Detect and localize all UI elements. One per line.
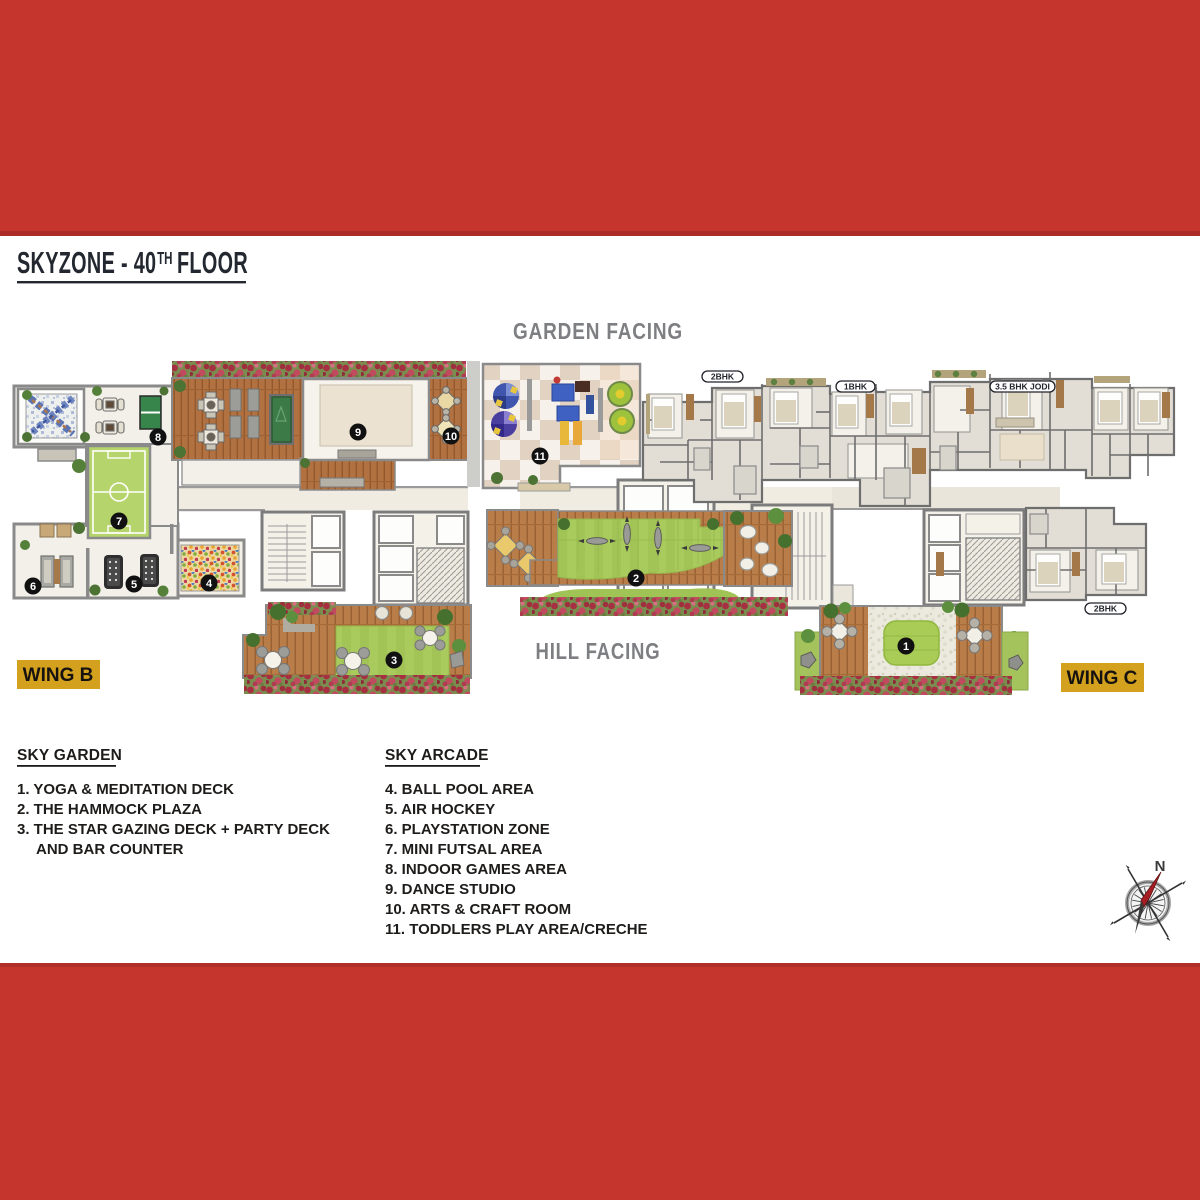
svg-text:WING B: WING B <box>23 665 94 686</box>
svg-text:5. AIR HOCKEY: 5. AIR HOCKEY <box>385 801 495 818</box>
svg-text:WING C: WING C <box>1067 668 1138 689</box>
svg-text:TH: TH <box>157 249 172 269</box>
svg-text:11: 11 <box>534 451 546 463</box>
svg-text:SKY ARCADE: SKY ARCADE <box>385 747 489 764</box>
svg-text:SKY GARDEN: SKY GARDEN <box>17 747 122 764</box>
svg-text:AND BAR COUNTER: AND BAR COUNTER <box>36 841 184 858</box>
svg-text:6: 6 <box>30 581 36 593</box>
svg-text:3.5 BHK JODI: 3.5 BHK JODI <box>995 382 1050 392</box>
svg-text:11. TODDLERS PLAY AREA/CRECHE: 11. TODDLERS PLAY AREA/CRECHE <box>385 921 648 938</box>
svg-text:3: 3 <box>391 655 397 667</box>
svg-text:2BHK: 2BHK <box>1094 604 1118 614</box>
svg-text:5: 5 <box>131 579 137 591</box>
svg-text:1. YOGA & MEDITATION DECK: 1. YOGA & MEDITATION DECK <box>17 781 234 798</box>
svg-text:1BHK: 1BHK <box>844 382 868 392</box>
svg-text:3. THE STAR GAZING DECK + PART: 3. THE STAR GAZING DECK + PARTY DECK <box>17 821 330 838</box>
svg-text:4: 4 <box>206 578 213 590</box>
svg-text:4. BALL POOL AREA: 4. BALL POOL AREA <box>385 781 534 798</box>
svg-text:HILL FACING: HILL FACING <box>536 638 661 664</box>
svg-text:9: 9 <box>355 427 361 439</box>
svg-text:N: N <box>1155 858 1166 875</box>
svg-text:2: 2 <box>633 573 639 585</box>
svg-text:7: 7 <box>116 516 122 528</box>
svg-text:7. MINI FUTSAL AREA: 7. MINI FUTSAL AREA <box>385 841 543 858</box>
svg-text:1: 1 <box>903 641 909 653</box>
svg-text:2. THE HAMMOCK PLAZA: 2. THE HAMMOCK PLAZA <box>17 801 202 818</box>
svg-text:10. ARTS & CRAFT ROOM: 10. ARTS & CRAFT ROOM <box>385 901 571 918</box>
svg-text:9. DANCE STUDIO: 9. DANCE STUDIO <box>385 881 516 898</box>
svg-text:SKYZONE - 40: SKYZONE - 40 <box>17 244 156 280</box>
svg-text:8: 8 <box>155 432 161 444</box>
svg-text:10: 10 <box>445 431 457 443</box>
svg-text:8. INDOOR GAMES AREA: 8. INDOOR GAMES AREA <box>385 861 567 878</box>
svg-text:6. PLAYSTATION ZONE: 6. PLAYSTATION ZONE <box>385 821 550 838</box>
svg-text:GARDEN FACING: GARDEN FACING <box>513 318 683 344</box>
svg-text:FLOOR: FLOOR <box>177 244 248 280</box>
svg-text:2BHK: 2BHK <box>711 372 735 382</box>
